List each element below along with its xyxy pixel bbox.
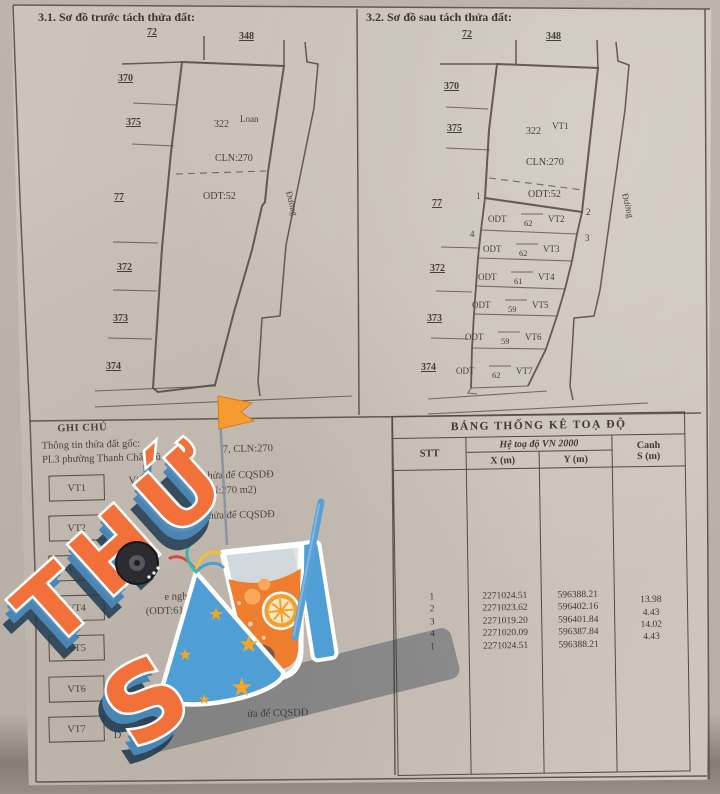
before-dashed-boundary bbox=[176, 171, 266, 174]
legend-box-vt7: VT7 bbox=[48, 715, 105, 742]
before-road-label: Đường bbox=[284, 190, 300, 217]
before-left-label: 373 bbox=[113, 313, 128, 324]
svg-text:62: 62 bbox=[524, 218, 533, 228]
corner-point-1: 1 bbox=[476, 191, 481, 201]
col-header-edge: Canh S (m) bbox=[612, 434, 685, 467]
after-land-use-lower: ODT:52 bbox=[528, 189, 561, 200]
after-land-use-upper: CLN:270 bbox=[526, 157, 564, 168]
origin-parcel-info-right: 7, CLN:270 bbox=[223, 443, 273, 455]
col-edge-values: 13.98 4.43 14.02 4.43 bbox=[612, 466, 690, 772]
svg-text:VT3: VT3 bbox=[543, 244, 560, 254]
col-header-x: X (m) bbox=[466, 451, 539, 469]
before-top-label-72: 72 bbox=[147, 27, 157, 38]
before-left-label: 77 bbox=[114, 192, 124, 203]
svg-text:ODT: ODT bbox=[478, 272, 497, 282]
after-left-label: 370 bbox=[444, 81, 459, 92]
svg-text:61: 61 bbox=[514, 276, 523, 286]
svg-text:ODT: ODT bbox=[483, 244, 502, 254]
col-stt-values: 1 2 3 4 1 bbox=[393, 469, 471, 775]
after-parcel-vt1: VT1 bbox=[552, 121, 569, 131]
diagram-after: 3.2. Sơ đồ sau tách thửa đất: 72 348 370… bbox=[366, 10, 648, 414]
before-parcel-number: 322 bbox=[214, 119, 229, 130]
after-left-label: 372 bbox=[430, 263, 445, 274]
svg-text:VT6: VT6 bbox=[525, 332, 542, 342]
before-left-label: 372 bbox=[117, 262, 132, 273]
after-top-label-72: 72 bbox=[462, 29, 472, 40]
strip-label-vt5: ODT 59 VT5 bbox=[472, 300, 549, 314]
after-left-label: 77 bbox=[432, 198, 442, 209]
diagram-before: 3.1. Sơ đồ trước tách thửa đất: 72 348 3… bbox=[38, 10, 352, 407]
after-top-label-348: 348 bbox=[546, 31, 561, 42]
legend-text-fragment: (ODT:61 bbox=[146, 605, 184, 617]
section-31-title: 3.1. Sơ đồ trước tách thửa đất: bbox=[38, 10, 195, 24]
before-left-label: 370 bbox=[118, 73, 133, 84]
after-strips-right-edge bbox=[528, 212, 582, 386]
legend-text-fragment: hửa để CQSDĐ bbox=[208, 509, 275, 522]
after-left-label: 373 bbox=[427, 313, 442, 324]
legend-text-fragment: thửa để CQSDĐ bbox=[204, 469, 274, 482]
legend-section: GHI CHÚ Thông tin thửa đất gốc: PL3 phườ… bbox=[33, 409, 400, 776]
before-left-label: 375 bbox=[126, 117, 141, 128]
legend-text-fragment: N:270 m2) bbox=[211, 485, 257, 497]
svg-text:VT5: VT5 bbox=[532, 300, 549, 310]
legend-text-fragment: e ngh bbox=[164, 591, 187, 603]
coordinate-table: BẢNG THỐNG KÊ TOẠ ĐỘ STT Hệ toạ độ VN 20… bbox=[392, 411, 691, 776]
svg-text:ODT: ODT bbox=[488, 214, 507, 224]
svg-text:ODT: ODT bbox=[456, 366, 475, 376]
before-land-use-upper: CLN:270 bbox=[215, 153, 253, 164]
legend-box-vt5: VT5 bbox=[48, 634, 105, 661]
origin-parcel-info-left: PL3 phường Thanh Châu cũ bbox=[42, 452, 161, 466]
svg-text:59: 59 bbox=[508, 304, 517, 314]
corner-point-4: 4 bbox=[470, 229, 475, 239]
section-32-title: 3.2. Sơ đồ sau tách thửa đất: bbox=[366, 10, 512, 24]
before-parcel-outline bbox=[153, 62, 284, 392]
after-parcel-number: 322 bbox=[526, 126, 541, 137]
col-y-values: 596388.21 596402.16 596401.84 596387.84 … bbox=[539, 467, 617, 773]
scanned-cadastral-document: { "sections": { "before": { "title": "3.… bbox=[0, 0, 720, 794]
col-x-values: 2271024.51 2271023.62 2271019.20 2271020… bbox=[466, 468, 544, 774]
legend-box-vt2: VT2 bbox=[48, 514, 105, 541]
col-header-stt: STT bbox=[393, 437, 466, 470]
svg-text:ODT: ODT bbox=[465, 332, 484, 342]
after-left-label: 375 bbox=[447, 123, 462, 134]
strip-label-vt2: ODT 62 VT2 bbox=[488, 214, 565, 228]
strip-label-vt4: ODT 61 VT4 bbox=[478, 272, 555, 286]
svg-text:VT7: VT7 bbox=[516, 366, 533, 376]
legend-text-fragment: Vị bbox=[128, 475, 139, 486]
legend-box-vt4: VT4 bbox=[48, 594, 105, 621]
before-parcel-owner: Loan bbox=[240, 114, 259, 124]
svg-text:62: 62 bbox=[492, 370, 501, 380]
legend-box-vt6: VT6 bbox=[48, 675, 105, 702]
svg-text:59: 59 bbox=[501, 336, 510, 346]
after-road-label: Đường bbox=[620, 192, 636, 219]
legend-text-fragment: ửa để CQSDĐ bbox=[247, 707, 308, 719]
legend-text-fragment: D bbox=[114, 730, 122, 741]
svg-text:ODT: ODT bbox=[472, 300, 491, 310]
svg-text:62: 62 bbox=[519, 248, 528, 258]
after-strips-left-edge bbox=[471, 198, 485, 388]
col-header-y: Y (m) bbox=[539, 450, 612, 468]
after-left-label: 374 bbox=[421, 362, 436, 373]
before-top-label-348: 348 bbox=[239, 31, 254, 42]
before-left-label: 374 bbox=[106, 361, 121, 372]
legend-text-fragment: Vị bbox=[110, 716, 121, 727]
strip-label-vt3: ODT 62 VT3 bbox=[483, 244, 560, 258]
legend-title: GHI CHÚ bbox=[57, 422, 107, 434]
before-land-use-lower: ODT:52 bbox=[203, 191, 236, 202]
legend-box-vt1: VT1 bbox=[48, 474, 105, 501]
corner-point-2: 2 bbox=[586, 207, 591, 217]
svg-text:VT4: VT4 bbox=[538, 272, 555, 282]
strip-label-vt7: ODT 62 VT7 bbox=[456, 366, 533, 380]
strip-label-vt6: ODT 59 VT6 bbox=[465, 332, 542, 346]
legend-box-vt3: VT3 bbox=[48, 554, 105, 581]
legend-subtitle: Thông tin thửa đất gốc: bbox=[42, 438, 141, 451]
corner-point-3: 3 bbox=[585, 233, 590, 243]
svg-text:VT2: VT2 bbox=[548, 214, 565, 224]
